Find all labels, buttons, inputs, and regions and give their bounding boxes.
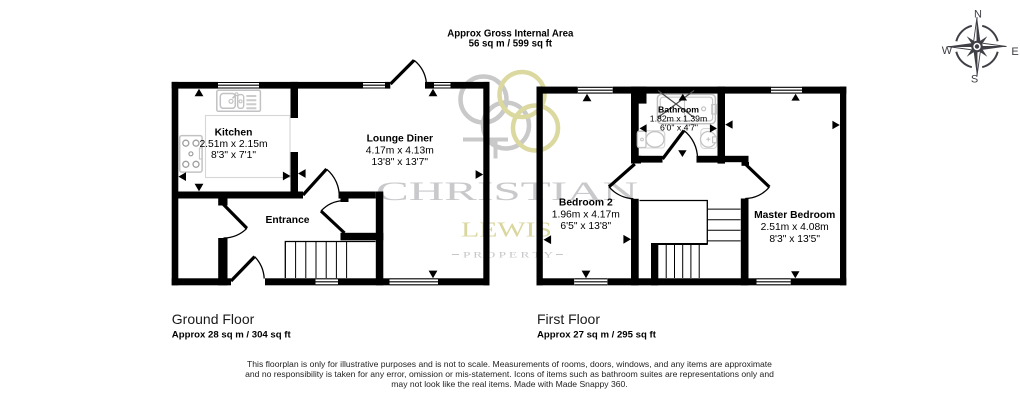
svg-text:Master Bedroom: Master Bedroom [754,210,835,221]
svg-text:Approx 27 sq m / 295 sq ft: Approx 27 sq m / 295 sq ft [537,330,657,341]
svg-text:2.51m x 2.15m: 2.51m x 2.15m [199,139,267,150]
svg-text:13'8" x 13'7": 13'8" x 13'7" [372,157,429,168]
svg-text:First Floor: First Floor [537,311,600,327]
svg-text:N: N [974,9,982,21]
svg-text:Lounge Diner: Lounge Diner [367,133,433,144]
svg-text:Entrance: Entrance [265,215,309,226]
svg-text:Ground Floor: Ground Floor [172,311,255,327]
svg-text:Bedroom 2: Bedroom 2 [559,198,613,209]
svg-text:and no responsibility is taken: and no responsibility is taken for any e… [245,369,774,379]
svg-text:may not look like the real ite: may not look like the real items. Made w… [391,379,627,389]
svg-text:8'3" x 13'5": 8'3" x 13'5" [769,234,820,245]
svg-text:Kitchen: Kitchen [215,128,253,139]
svg-text:6'0" x 4'7": 6'0" x 4'7" [660,123,698,133]
svg-text:E: E [1011,46,1018,58]
svg-text:W: W [942,45,953,57]
svg-text:4.17m x 4.13m: 4.17m x 4.13m [366,145,434,156]
svg-text:Approx Gross Internal Area: Approx Gross Internal Area [447,28,574,39]
svg-text:8'3" x 7'1": 8'3" x 7'1" [211,150,256,161]
svg-text:1.96m x 4.17m: 1.96m x 4.17m [552,209,620,220]
svg-text:2.51m x 4.08m: 2.51m x 4.08m [761,222,829,233]
svg-text:56 sq m / 599 sq ft: 56 sq m / 599 sq ft [469,39,553,50]
svg-text:This floorplan is only for ill: This floorplan is only for illustrative … [247,359,772,369]
svg-text:Approx 28 sq m / 304 sq ft: Approx 28 sq m / 304 sq ft [172,330,292,341]
svg-text:S: S [971,74,978,86]
svg-text:6'5" x 13'8": 6'5" x 13'8" [560,221,611,232]
